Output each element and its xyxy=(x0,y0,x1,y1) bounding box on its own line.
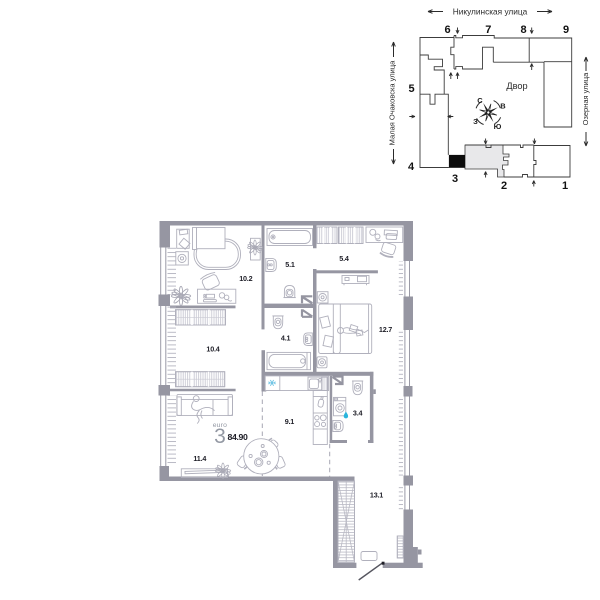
svg-text:Двор: Двор xyxy=(506,81,527,91)
svg-text:84.90: 84.90 xyxy=(228,432,249,442)
svg-text:10.4: 10.4 xyxy=(206,345,219,354)
svg-text:С: С xyxy=(477,96,483,105)
svg-text:1: 1 xyxy=(562,180,568,192)
svg-text:Малая Очаковска улица: Малая Очаковска улица xyxy=(388,60,397,145)
svg-text:Ю: Ю xyxy=(494,122,502,131)
svg-text:В: В xyxy=(500,102,506,111)
svg-text:7: 7 xyxy=(485,24,491,36)
svg-text:3.4: 3.4 xyxy=(353,409,363,418)
svg-text:Никулинская улица: Никулинская улица xyxy=(453,7,528,17)
svg-text:4: 4 xyxy=(408,161,415,173)
svg-text:9.1: 9.1 xyxy=(285,417,295,426)
svg-text:6: 6 xyxy=(444,24,450,36)
svg-text:4.1: 4.1 xyxy=(281,334,291,343)
svg-text:11.4: 11.4 xyxy=(193,454,206,463)
svg-text:З: З xyxy=(473,117,478,126)
svg-text:Озерная улица: Озерная улица xyxy=(581,72,590,125)
svg-text:10.2: 10.2 xyxy=(239,274,252,283)
svg-text:5.4: 5.4 xyxy=(339,254,349,263)
svg-text:3: 3 xyxy=(214,425,225,448)
svg-text:8: 8 xyxy=(520,24,526,36)
svg-text:5: 5 xyxy=(408,83,414,95)
svg-text:5.1: 5.1 xyxy=(285,260,295,269)
svg-text:9: 9 xyxy=(563,24,569,36)
svg-text:2: 2 xyxy=(501,180,507,192)
svg-text:12.7: 12.7 xyxy=(379,325,392,334)
svg-text:13.1: 13.1 xyxy=(370,491,383,500)
svg-text:3: 3 xyxy=(452,173,458,185)
